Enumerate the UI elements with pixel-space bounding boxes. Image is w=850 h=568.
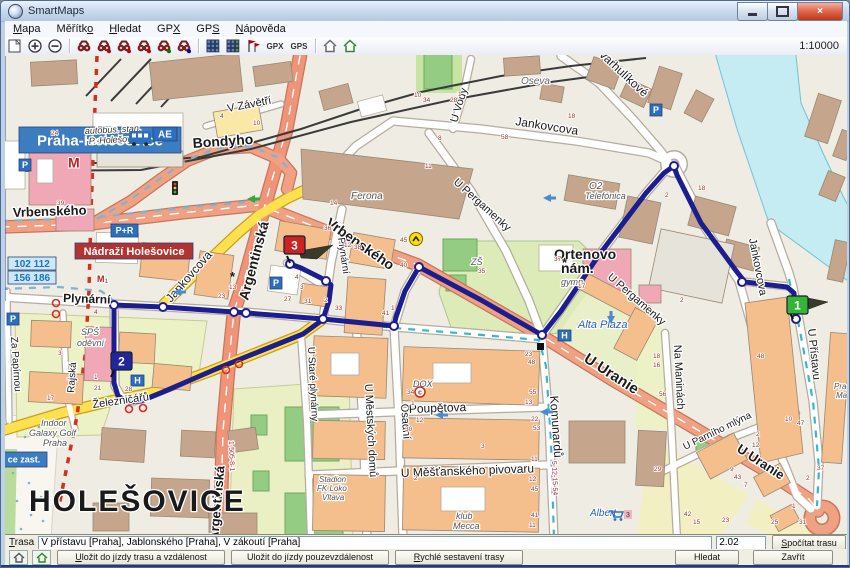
svg-text:41: 41 xyxy=(531,512,539,519)
toolbar: GPXGPS 1:10000 xyxy=(5,37,847,56)
svg-text:3: 3 xyxy=(481,443,485,450)
svg-text:37: 37 xyxy=(817,465,825,472)
svg-text:2: 2 xyxy=(806,475,810,482)
svg-text:40: 40 xyxy=(400,262,408,269)
svg-text:Rajská: Rajská xyxy=(66,362,79,394)
search-button-5[interactable] xyxy=(155,38,173,54)
svg-text:2: 2 xyxy=(118,355,125,369)
svg-text:1: 1 xyxy=(391,305,395,312)
svg-text:AE: AE xyxy=(158,130,172,141)
svg-text:48: 48 xyxy=(757,353,765,360)
window-title: SmartMaps xyxy=(28,5,84,17)
svg-text:Galaxy Golf: Galaxy Golf xyxy=(29,428,78,438)
svg-text:9: 9 xyxy=(730,466,734,473)
svg-text:37: 37 xyxy=(554,256,562,263)
zoom-out-button[interactable] xyxy=(46,38,64,54)
close-icon: × xyxy=(817,6,823,17)
svg-text:56: 56 xyxy=(659,391,667,398)
svg-text:2: 2 xyxy=(414,475,418,482)
svg-text:55: 55 xyxy=(529,389,537,396)
svg-text:Plynární: Plynární xyxy=(63,291,111,307)
svg-text:2: 2 xyxy=(324,297,328,304)
svg-text:3: 3 xyxy=(291,239,298,253)
svg-text:15: 15 xyxy=(693,519,701,526)
svg-text:35: 35 xyxy=(478,268,486,275)
svg-text:17: 17 xyxy=(47,395,55,402)
map-box-n-dra-hole-ovice: Nádraží Holešovice xyxy=(75,243,193,259)
svg-text:Telefónica: Telefónica xyxy=(585,191,626,201)
svg-text:8: 8 xyxy=(438,135,442,142)
gps-button[interactable]: GPS xyxy=(288,38,310,54)
svg-text:18: 18 xyxy=(653,353,661,360)
home-green-button[interactable] xyxy=(341,38,359,54)
svg-text:H: H xyxy=(134,376,141,386)
svg-text:3: 3 xyxy=(626,512,630,519)
svg-text:c: c xyxy=(418,390,422,397)
home-small-green-button[interactable] xyxy=(32,550,51,565)
svg-text:3: 3 xyxy=(300,284,304,291)
svg-text:102 112: 102 112 xyxy=(14,259,50,270)
svg-text:14: 14 xyxy=(330,200,338,207)
svg-text:P+R: P+R xyxy=(116,226,134,236)
svg-text:Nádraží Holešovice: Nádraží Holešovice xyxy=(84,246,185,258)
search-button-4[interactable] xyxy=(135,38,153,54)
svg-text:18: 18 xyxy=(568,113,576,120)
maximize-button[interactable] xyxy=(767,2,798,21)
svg-text:28: 28 xyxy=(450,97,458,104)
svg-text:42: 42 xyxy=(684,511,692,518)
svg-text:1: 1 xyxy=(794,299,801,313)
svg-text:28: 28 xyxy=(125,386,133,393)
map-box-p: P xyxy=(650,104,662,116)
app-compass-icon xyxy=(8,4,23,19)
svg-text:2: 2 xyxy=(665,192,669,199)
map-box-h: H xyxy=(131,375,144,386)
svg-text:Alta Plaza: Alta Plaza xyxy=(577,319,628,331)
svg-text:39: 39 xyxy=(57,200,65,207)
svg-text:12: 12 xyxy=(344,242,352,249)
svg-text:36: 36 xyxy=(324,225,332,232)
svg-text:ce zast.: ce zast. xyxy=(8,455,41,465)
svg-text:30: 30 xyxy=(405,426,413,433)
svg-text:47: 47 xyxy=(797,420,805,427)
svg-text:33: 33 xyxy=(335,305,343,312)
smartmaps-window: SmartMaps × MapaMěřítkoHledatGPXGPSNápov… xyxy=(0,0,850,568)
svg-text:10: 10 xyxy=(785,416,793,423)
svg-text:156 186: 156 186 xyxy=(14,273,51,284)
search-button-6[interactable] xyxy=(175,38,193,54)
svg-text:4: 4 xyxy=(295,274,299,281)
quick-route-button[interactable]: Rychlé sestavení trasy xyxy=(395,550,523,565)
home-button[interactable] xyxy=(321,38,339,54)
svg-text:17: 17 xyxy=(578,283,586,290)
svg-text:31: 31 xyxy=(304,298,312,305)
menu-hledat[interactable]: Hledat xyxy=(101,22,149,36)
svg-text:klub: klub xyxy=(456,511,473,521)
distance-input[interactable] xyxy=(716,536,766,550)
title-bar[interactable]: SmartMaps × xyxy=(1,1,849,22)
svg-text:Indoor: Indoor xyxy=(41,418,68,428)
svg-text:7: 7 xyxy=(744,482,748,489)
svg-text:2: 2 xyxy=(756,431,760,438)
svg-text:41: 41 xyxy=(382,310,390,317)
svg-text:P: P xyxy=(273,278,279,288)
svg-text:H: H xyxy=(561,331,568,341)
maximize-icon xyxy=(776,6,789,17)
svg-text:24: 24 xyxy=(51,130,59,137)
svg-text:4: 4 xyxy=(220,113,224,120)
map-box-156-186: 156 186 xyxy=(8,271,56,284)
actions-row: Uložit do jízdy trasu a vzdálenost Uloži… xyxy=(5,549,847,565)
svg-text:23: 23 xyxy=(218,293,226,300)
svg-text:18: 18 xyxy=(698,185,706,192)
svg-text:Vrbenského: Vrbenského xyxy=(13,202,87,220)
find-button[interactable]: Hledat xyxy=(675,550,739,565)
map-box-102-112: 102 112 xyxy=(8,257,56,270)
search-button-1[interactable] xyxy=(75,38,93,54)
svg-text:4: 4 xyxy=(94,309,98,316)
svg-text:11: 11 xyxy=(425,163,432,170)
grid-button[interactable] xyxy=(204,38,222,54)
svg-text:P: P xyxy=(10,314,16,324)
home-small-button[interactable] xyxy=(9,550,28,565)
svg-text:29: 29 xyxy=(654,466,662,473)
svg-text:13: 13 xyxy=(525,399,533,406)
svg-text:8: 8 xyxy=(528,55,532,57)
svg-text:45: 45 xyxy=(531,486,539,493)
compute-route-button[interactable]: Spočítat trasu xyxy=(772,535,846,550)
svg-text:Stadion: Stadion xyxy=(319,475,347,484)
svg-text:45: 45 xyxy=(400,237,408,244)
svg-text:1: 1 xyxy=(458,91,462,98)
route-field-label: Trasa xyxy=(5,537,38,548)
route-flags-button[interactable] xyxy=(244,38,262,54)
svg-text:P: P xyxy=(653,105,659,115)
svg-text:23: 23 xyxy=(722,517,730,524)
close-button[interactable]: × xyxy=(797,2,843,21)
svg-text:Poupětova: Poupětova xyxy=(409,400,467,416)
svg-text:13: 13 xyxy=(229,284,237,291)
menu-gpx[interactable]: GPX xyxy=(149,22,188,36)
traffic-light-icon xyxy=(172,181,178,195)
menu-gps[interactable]: GPS xyxy=(188,22,227,36)
map-box-h: H xyxy=(558,330,571,341)
svg-text:Prag: Prag xyxy=(834,382,847,391)
svg-text:23: 23 xyxy=(525,351,533,358)
svg-text:53: 53 xyxy=(533,425,541,432)
minimize-icon xyxy=(748,13,757,16)
svg-text:58: 58 xyxy=(501,134,509,141)
svg-text:2: 2 xyxy=(680,297,684,304)
svg-text:12: 12 xyxy=(752,442,760,449)
svg-text:48: 48 xyxy=(528,359,536,366)
zoom-in-button[interactable] xyxy=(26,38,44,54)
map-box-ae: AE xyxy=(153,127,177,141)
svg-text:1: 1 xyxy=(411,400,415,407)
svg-text:1: 1 xyxy=(792,503,796,510)
svg-text:ZŠ: ZŠ xyxy=(470,257,483,267)
svg-text:Man: Man xyxy=(836,391,847,400)
svg-text:10: 10 xyxy=(414,92,422,99)
svg-text:43: 43 xyxy=(734,474,742,481)
svg-text:12: 12 xyxy=(416,417,424,424)
new-map-button[interactable] xyxy=(6,38,24,54)
map-box-p-r: P+R xyxy=(111,224,138,237)
svg-text:P: P xyxy=(22,160,28,170)
svg-text:SPŠ: SPŠ xyxy=(81,327,99,337)
svg-text:1: 1 xyxy=(94,374,98,381)
map-svg: 123Praha-HolešoviceNádraží HolešoviceAEP… xyxy=(5,55,847,534)
map-box-p: P xyxy=(19,159,31,171)
svg-text:Mecca: Mecca xyxy=(453,521,480,531)
bus-icon xyxy=(129,131,151,146)
search-button-2[interactable] xyxy=(95,38,113,54)
svg-text:Praha: Praha xyxy=(43,438,67,448)
save-distance-only-button[interactable]: Uložit do jízdy pouze vzdálenost xyxy=(231,550,389,565)
gpx-button[interactable]: GPX xyxy=(264,38,286,54)
svg-text:Ferona: Ferona xyxy=(351,191,383,202)
svg-text:oděvní: oděvní xyxy=(77,338,106,348)
map-canvas[interactable]: 123Praha-HolešoviceNádraží HolešoviceAEP… xyxy=(5,55,847,534)
map-box-p: P xyxy=(270,277,282,289)
search-button-3[interactable] xyxy=(115,38,133,54)
svg-text:Vltava: Vltava xyxy=(322,493,345,502)
dox-gallery-icon: c xyxy=(415,387,425,397)
route-row: Trasa Spočítat trasu xyxy=(5,534,847,550)
svg-text:16: 16 xyxy=(653,362,661,369)
menu-mapa[interactable]: Mapa xyxy=(5,22,49,36)
svg-text:12: 12 xyxy=(529,476,537,483)
menu-npovda[interactable]: Nápověda xyxy=(228,22,294,36)
close-panel-button[interactable]: Zavřít xyxy=(753,550,833,565)
svg-text:10: 10 xyxy=(253,120,261,127)
svg-text:HOLEŠOVICE: HOLEŠOVICE xyxy=(29,484,246,518)
metro-icon: M xyxy=(68,155,80,171)
svg-text:5-12-15-54: 5-12-15-54 xyxy=(550,461,558,496)
route-input[interactable] xyxy=(38,536,712,550)
map-box-p: P xyxy=(7,313,19,325)
svg-text:21: 21 xyxy=(94,385,102,392)
svg-text:FK Loko: FK Loko xyxy=(317,484,347,493)
svg-text:3: 3 xyxy=(58,350,62,357)
map-box-ce-zast-: ce zast. xyxy=(5,452,47,467)
svg-text:11: 11 xyxy=(531,456,538,463)
metro-icon: M xyxy=(97,274,105,284)
minimize-button[interactable] xyxy=(737,2,768,21)
save-route-distance-button[interactable]: Uložit do jízdy trasu a vzdálenost xyxy=(57,550,225,565)
svg-text:34: 34 xyxy=(407,389,415,396)
svg-text:38: 38 xyxy=(354,244,362,251)
svg-text:22: 22 xyxy=(531,416,539,423)
svg-text:1-505-8-1: 1-505-8-1 xyxy=(227,441,235,472)
traffic-warning-icon xyxy=(410,233,423,246)
map-scale: 1:10000 xyxy=(799,37,839,55)
grid-green-button[interactable] xyxy=(224,38,242,54)
menu-mtko[interactable]: Měřítko xyxy=(49,22,102,36)
svg-text:25: 25 xyxy=(771,519,779,526)
svg-text:27: 27 xyxy=(284,296,292,303)
menu-bar: MapaMěřítkoHledatGPXGPSNápověda xyxy=(5,21,847,38)
svg-text:34: 34 xyxy=(423,97,431,104)
svg-text:Oseva: Oseva xyxy=(521,76,550,87)
svg-text:11: 11 xyxy=(529,522,536,529)
svg-text:31: 31 xyxy=(799,519,807,526)
